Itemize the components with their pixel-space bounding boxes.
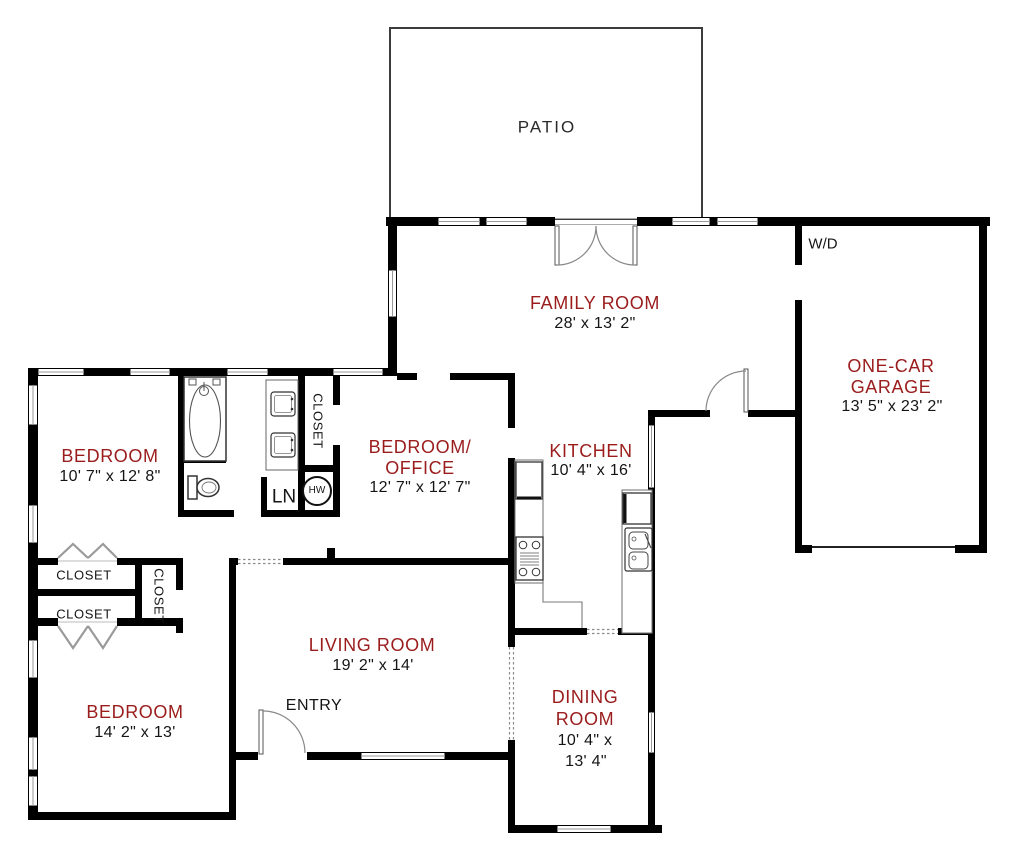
entry-label: ENTRY: [286, 698, 342, 714]
linen-closet-label: LN: [272, 488, 296, 507]
entry-door: [259, 710, 305, 754]
kitchen-sink: [625, 528, 652, 571]
bedroom-top-label: BEDROOM: [61, 447, 158, 465]
closet-upper-label: CLOSET: [56, 569, 112, 582]
kitchen-dimensions: 10' 4" x 16': [550, 463, 631, 479]
bedroom-office-label-line2: OFFICE: [385, 459, 455, 477]
washer-dryer-label: W/D: [808, 237, 837, 252]
dining-room-label-line2: ROOM: [556, 710, 614, 728]
floor-plan: PATIO FAMILY ROOM 28' x 13' 2" W/D ONE-C…: [0, 0, 1024, 864]
garage-label-line2: GARAGE: [851, 378, 932, 396]
rear-door: [706, 369, 748, 412]
refrigerator: [516, 462, 542, 499]
bedroom-bottom-label: BEDROOM: [86, 703, 183, 721]
toilet: [188, 476, 219, 499]
vanity-sinks: [266, 380, 298, 470]
bedroom-office-dimensions: 12' 7" x 12' 7": [369, 480, 470, 496]
dining-room-dimensions-line1: 10' 4" x: [558, 733, 613, 749]
bedroom-bottom-dimensions: 14' 2" x 13': [94, 725, 175, 741]
kitchen-label: KITCHEN: [549, 442, 632, 460]
living-room-dimensions: 19' 2" x 14': [332, 658, 413, 674]
dining-room-dimensions-line2: 13' 4": [565, 754, 607, 770]
water-heater-label: HW: [309, 486, 326, 496]
bedroom-top-dimensions: 10' 7" x 12' 8": [59, 469, 160, 485]
bathtub: [184, 377, 226, 461]
garage-dimensions: 13' 5" x 23' 2": [841, 399, 942, 415]
patio-french-doors: [555, 219, 637, 266]
bedroom-office-label-line1: BEDROOM/: [369, 438, 472, 456]
living-room-label: LIVING ROOM: [309, 636, 436, 654]
family-room-label: FAMILY ROOM: [530, 294, 660, 312]
garage-label-line1: ONE-CAR: [847, 357, 934, 375]
wall-oven: [623, 493, 651, 524]
closet-lower-label: CLOSET: [56, 608, 112, 621]
hall-closet-label: CLOSET: [153, 568, 166, 624]
patio-label: PATIO: [518, 119, 577, 136]
range-stove: [516, 537, 543, 580]
dining-room-label-line1: DINING: [552, 688, 619, 706]
family-room-dimensions: 28' x 13' 2": [554, 316, 635, 332]
bathroom-closet-label: CLOSET: [312, 393, 325, 449]
